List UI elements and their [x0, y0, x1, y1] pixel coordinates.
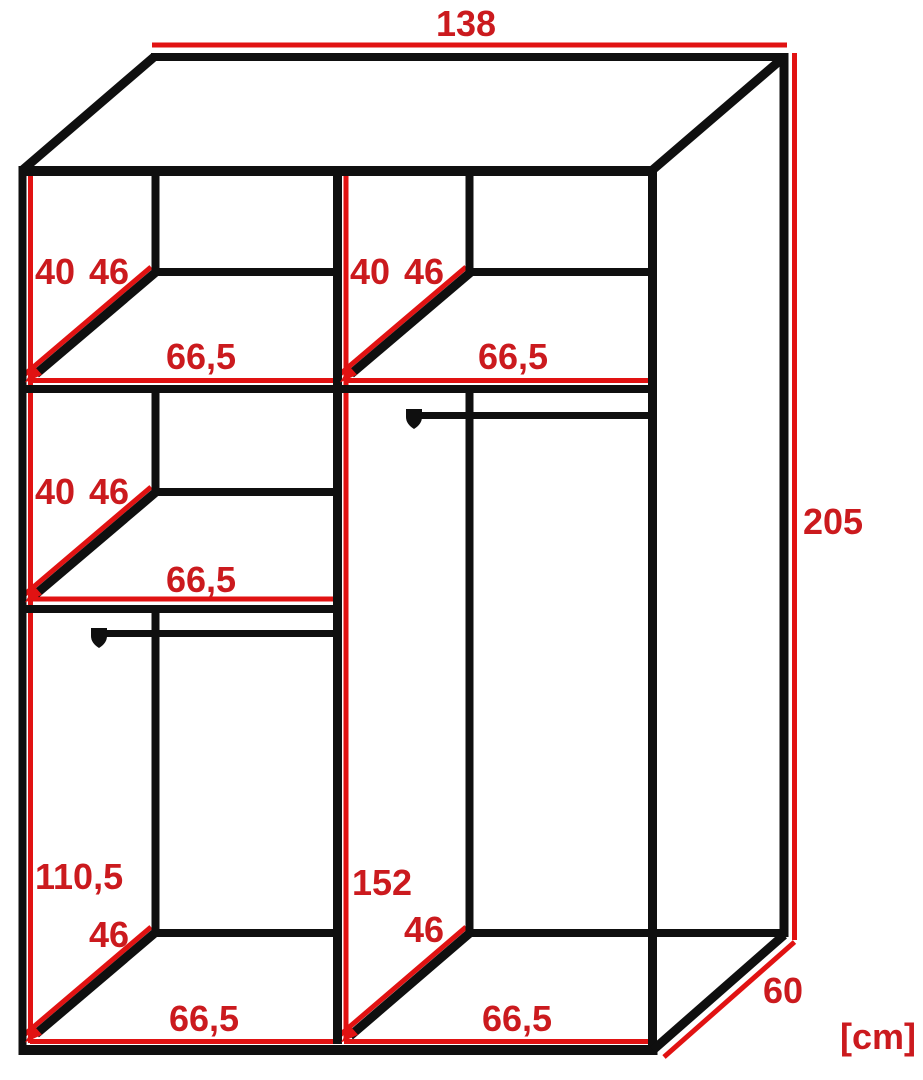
svg-text:66,5: 66,5 [166, 559, 236, 600]
svg-text:66,5: 66,5 [169, 998, 239, 1039]
svg-text:46: 46 [89, 914, 129, 955]
svg-text:46: 46 [404, 909, 444, 950]
svg-text:66,5: 66,5 [478, 336, 548, 377]
svg-text:46: 46 [89, 471, 129, 512]
svg-text:152: 152 [352, 862, 412, 903]
svg-text:110,5: 110,5 [35, 856, 123, 897]
svg-text:66,5: 66,5 [482, 998, 552, 1039]
svg-text:46: 46 [404, 251, 444, 292]
svg-text:[cm]: [cm] [840, 1016, 916, 1057]
svg-text:40: 40 [35, 251, 75, 292]
svg-text:40: 40 [35, 471, 75, 512]
svg-text:138: 138 [436, 3, 496, 44]
svg-text:40: 40 [350, 251, 390, 292]
svg-text:60: 60 [763, 970, 803, 1011]
svg-text:66,5: 66,5 [166, 336, 236, 377]
svg-text:46: 46 [89, 251, 129, 292]
svg-text:205: 205 [803, 501, 863, 542]
